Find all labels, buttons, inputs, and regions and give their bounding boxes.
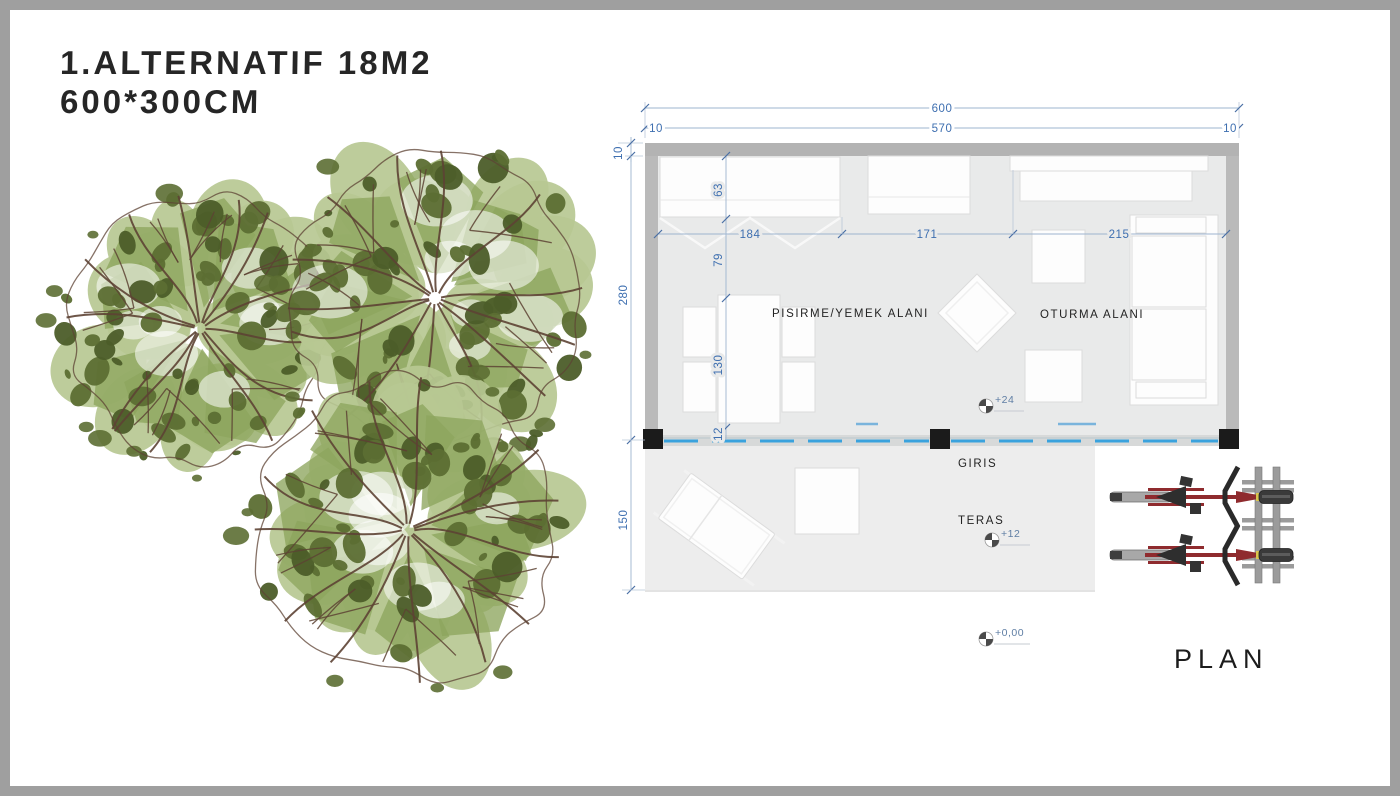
column-left: [643, 429, 663, 449]
dim-sitting-span: 215: [1109, 229, 1130, 241]
bike-rack: [1242, 467, 1294, 583]
dim-counter-depth: 63: [713, 183, 725, 197]
dim-table-to-glass: 12: [713, 427, 725, 441]
label-cooking-dining-area: PISIRME/YEMEK ALANI: [772, 308, 929, 320]
floor-plan-drawing: 600 570 10 10 10 280 150 184 171 215 63 …: [600, 90, 1400, 730]
sofa-seat-cushion: [1132, 236, 1206, 307]
side-table-upper: [1032, 230, 1085, 283]
dim-wall-left: 10: [649, 123, 663, 135]
drawing-sheet: 1.ALTERNATIF 18M2 600*300CM: [0, 0, 1400, 796]
wardrobe-front: [1020, 171, 1192, 201]
plan-caption: PLAN: [1174, 644, 1269, 674]
sofa-arm-bottom: [1136, 382, 1206, 398]
dim-wall-right: 10: [1223, 123, 1237, 135]
side-table-lower: [1025, 350, 1082, 402]
terrace-table: [795, 468, 859, 534]
cabinet-top-middle: [868, 156, 970, 214]
dim-counter-width: 184: [740, 229, 761, 241]
level-value-terrace: +12: [1001, 528, 1020, 540]
dim-inner-height: 280: [618, 285, 630, 306]
dim-middle-span: 171: [917, 229, 938, 241]
kitchen-counter: [660, 157, 840, 217]
level-marker-ground: +0,00: [979, 627, 1030, 646]
wardrobe-top: [1010, 156, 1208, 171]
label-entrance: GIRIS: [958, 458, 997, 470]
column-middle: [930, 429, 950, 449]
label-sitting-area: OTURMA ALANI: [1040, 309, 1144, 321]
bicycle-top-view: [1110, 525, 1293, 585]
dim-inner-width: 570: [932, 123, 953, 135]
dim-wall-top: 10: [613, 146, 625, 160]
wall-right: [1226, 156, 1239, 435]
dim-counter-to-table: 79: [713, 253, 725, 267]
dim-terrace-depth: 150: [618, 510, 630, 531]
wall-left: [645, 156, 658, 435]
column-right: [1219, 429, 1239, 449]
title-line-1: 1.ALTERNATIF 18M2: [60, 44, 433, 83]
level-value-interior: +24: [995, 394, 1014, 406]
chair: [782, 362, 815, 412]
dining-table: [718, 295, 780, 423]
chair: [683, 307, 716, 357]
chair: [683, 362, 716, 412]
dim-total-width: 600: [932, 103, 953, 115]
sofa-arm-top: [1136, 217, 1206, 233]
wall-top: [645, 143, 1239, 156]
landscape-trees-illustration: [30, 100, 630, 796]
level-value-ground: +0,00: [995, 627, 1024, 639]
label-terrace: TERAS: [958, 515, 1004, 527]
dim-table-length: 130: [713, 355, 725, 376]
